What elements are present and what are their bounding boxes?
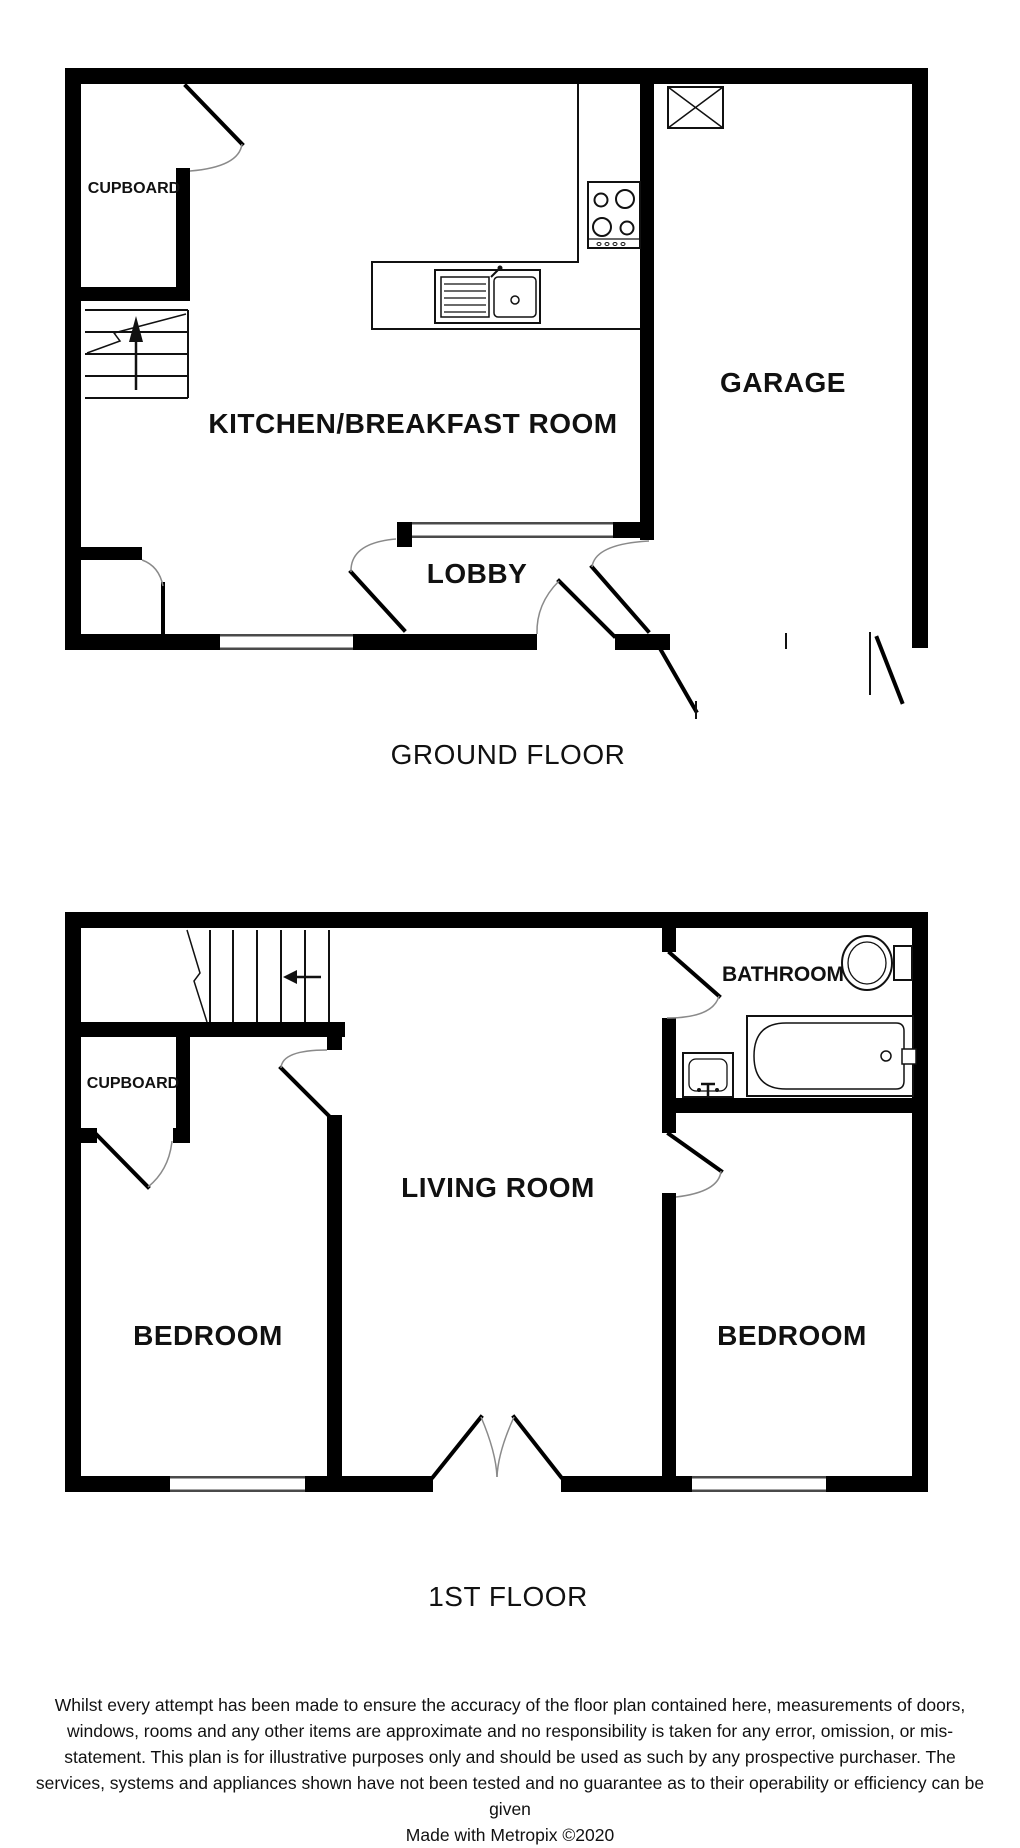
ground-floor-title: GROUND FLOOR <box>391 739 626 770</box>
stairs-up <box>85 310 188 398</box>
disclaimer-text: Whilst every attempt has been made to en… <box>30 1692 990 1822</box>
bathroom-door <box>667 953 719 1018</box>
wall <box>662 1113 676 1133</box>
wall-living-bedroom-divider <box>662 1193 676 1476</box>
stairs-direction-arrow <box>283 970 297 984</box>
wall-kitchen-garage-divider <box>640 84 654 540</box>
label-cupboard-ground: CUPBOARD <box>88 180 180 197</box>
crossed-box-symbol <box>668 87 723 128</box>
wall <box>65 912 81 1492</box>
label-kitchen-breakfast: KITCHEN/BREAKFAST ROOM <box>208 408 617 439</box>
cupboard-door-first <box>95 1133 172 1187</box>
label-bedroom-right: BEDROOM <box>717 1320 867 1351</box>
ground-floor-plan: CUPBOARD KITCHEN/BREAKFAST ROOM LOBBY GA… <box>65 68 928 770</box>
label-cupboard-first: CUPBOARD <box>87 1075 179 1092</box>
kitchen-lobby-door <box>351 539 404 630</box>
bedroom-right-door <box>669 1134 721 1197</box>
kitchen-sink <box>435 266 540 324</box>
footer: Whilst every attempt has been made to en… <box>30 1692 990 1848</box>
cupboard-door <box>186 86 242 171</box>
bedroom-right-window <box>692 1476 826 1492</box>
toilet <box>842 936 912 990</box>
first-floor-windows <box>170 1476 826 1492</box>
lobby-window <box>412 522 613 538</box>
wall <box>613 522 640 538</box>
wall-bathroom-left <box>662 1018 676 1098</box>
bathtub <box>747 1016 916 1096</box>
first-floor-title: 1ST FLOOR <box>428 1581 588 1612</box>
wall <box>327 1037 342 1050</box>
french-doors <box>433 1417 561 1477</box>
garage-doors <box>658 632 902 719</box>
hob <box>588 182 640 248</box>
credit-text: Made with Metropix ©2020 <box>30 1822 990 1848</box>
floorplan-drawing: CUPBOARD KITCHEN/BREAKFAST ROOM LOBBY GA… <box>0 0 1020 1836</box>
wall <box>662 928 676 952</box>
wall-bathroom-bottom <box>662 1098 928 1113</box>
wall <box>912 912 928 1492</box>
wall-stair-bottom <box>81 1022 345 1037</box>
wall-lobby-post <box>397 522 412 547</box>
wall-bedroom-living-divider <box>327 1115 342 1476</box>
wall <box>81 1128 97 1143</box>
wall <box>65 68 81 650</box>
label-living-room: LIVING ROOM <box>401 1172 595 1203</box>
wall-understair-stub <box>81 547 142 560</box>
first-floor-plan: CUPBOARD BATHROOM LIVING ROOM BEDROOM BE… <box>65 912 928 1612</box>
label-bathroom: BATHROOM <box>722 963 844 986</box>
lobby-garage-door <box>592 541 649 631</box>
wall <box>65 912 928 928</box>
front-door <box>537 581 614 636</box>
kitchen-window <box>220 634 353 650</box>
wall <box>65 68 928 84</box>
stairs-first-floor <box>187 930 329 1022</box>
living-room-door <box>281 1050 333 1120</box>
label-garage: GARAGE <box>720 367 846 398</box>
wall <box>173 1128 190 1143</box>
wash-basin <box>683 1053 733 1097</box>
label-lobby: LOBBY <box>427 558 528 589</box>
understair-door <box>142 560 163 634</box>
label-bedroom-left: BEDROOM <box>133 1320 283 1351</box>
french-door-opening <box>433 1476 561 1492</box>
wall <box>912 68 928 648</box>
wall-cupboard-bottom <box>65 287 190 301</box>
bedroom-left-window <box>170 1476 305 1492</box>
